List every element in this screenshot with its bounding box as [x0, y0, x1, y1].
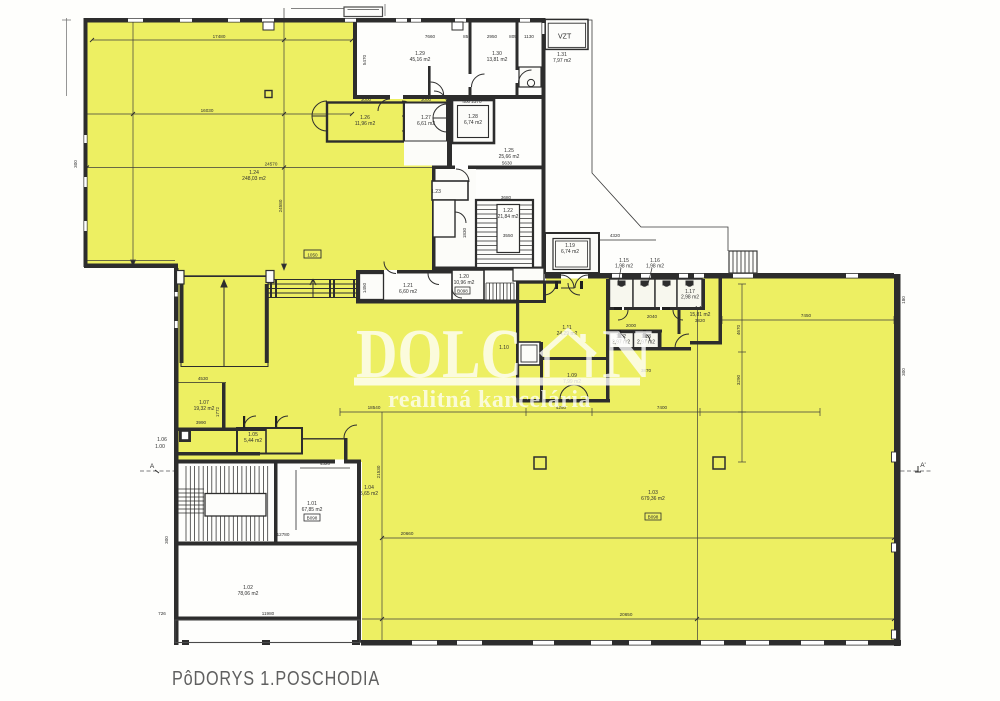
svg-text:B098: B098 — [648, 515, 659, 520]
svg-text:5,44 m2: 5,44 m2 — [244, 438, 262, 444]
svg-text:6,74 m2: 6,74 m2 — [561, 249, 579, 255]
svg-text:1.23: 1.23 — [431, 189, 441, 195]
svg-text:3990: 3990 — [196, 420, 207, 425]
svg-text:7450: 7450 — [801, 313, 812, 318]
svg-text:1.06: 1.06 — [157, 437, 167, 443]
svg-text:805: 805 — [509, 34, 517, 39]
svg-text:24570: 24570 — [265, 162, 278, 167]
svg-text:4320: 4320 — [320, 461, 331, 466]
svg-text:78,06 m2: 78,06 m2 — [238, 591, 259, 597]
svg-text:1,98 m2: 1,98 m2 — [646, 264, 664, 270]
svg-text:400 2370: 400 2370 — [462, 99, 482, 104]
svg-text:1130: 1130 — [524, 34, 534, 39]
svg-text:7400: 7400 — [657, 405, 668, 410]
svg-text:16030: 16030 — [201, 108, 214, 113]
svg-text:4530: 4530 — [198, 376, 209, 381]
svg-text:67,85 m2: 67,85 m2 — [302, 507, 323, 513]
svg-text:20660: 20660 — [401, 531, 414, 536]
svg-text:6,74 m2: 6,74 m2 — [464, 120, 482, 126]
svg-text:679,36 m2: 679,36 m2 — [641, 496, 665, 502]
svg-text:1050: 1050 — [307, 253, 318, 258]
svg-text:12780: 12780 — [277, 532, 290, 537]
svg-text:5,65 m2: 5,65 m2 — [360, 491, 378, 497]
svg-text:300: 300 — [901, 368, 906, 376]
svg-text:1450: 1450 — [362, 282, 367, 293]
svg-text:4320: 4320 — [610, 233, 621, 238]
svg-text:45,16 m2: 45,16 m2 — [410, 57, 431, 63]
svg-text:3000: 3000 — [361, 97, 372, 102]
svg-text:300: 300 — [164, 536, 169, 544]
svg-text:1772: 1772 — [215, 406, 220, 417]
svg-text:300: 300 — [73, 160, 78, 168]
svg-text:5470: 5470 — [362, 54, 367, 65]
svg-text:24580: 24580 — [278, 199, 283, 212]
svg-text:248,03 m2: 248,03 m2 — [242, 176, 266, 182]
svg-text:25,66 m2: 25,66 m2 — [499, 154, 520, 160]
svg-text:A: A — [150, 463, 155, 470]
svg-text:10,96 m2: 10,96 m2 — [454, 280, 475, 286]
svg-text:VZT: VZT — [558, 34, 572, 41]
svg-text:3820: 3820 — [695, 318, 706, 323]
svg-text:3290: 3290 — [736, 374, 741, 385]
svg-text:3000: 3000 — [421, 97, 432, 102]
svg-text:2,98 m2: 2,98 m2 — [681, 295, 699, 301]
svg-text:180: 180 — [901, 296, 906, 304]
svg-text:2950: 2950 — [487, 34, 498, 39]
svg-text:11980: 11980 — [262, 611, 275, 616]
svg-text:19,32 m2: 19,32 m2 — [194, 406, 215, 412]
svg-text:A': A' — [920, 462, 926, 469]
svg-text:7,97 m2: 7,97 m2 — [553, 58, 571, 64]
svg-text:855: 855 — [463, 34, 471, 39]
svg-text:B098: B098 — [457, 289, 468, 294]
svg-text:3550: 3550 — [503, 233, 514, 238]
svg-text:5630: 5630 — [502, 161, 513, 166]
svg-text:1.00: 1.00 — [155, 444, 165, 450]
svg-text:PôDORYS 1.POSCHODIA: PôDORYS 1.POSCHODIA — [172, 668, 380, 690]
svg-text:7660: 7660 — [425, 34, 436, 39]
svg-text:realitná kancelária: realitná kancelária — [388, 387, 591, 413]
svg-text:6,60 m2: 6,60 m2 — [399, 289, 417, 295]
svg-text:3680: 3680 — [501, 195, 512, 200]
svg-text:DOLC: DOLC — [356, 316, 522, 393]
svg-text:13,81 m2: 13,81 m2 — [487, 57, 508, 63]
svg-text:1830: 1830 — [462, 227, 467, 238]
svg-text:N: N — [602, 316, 653, 393]
svg-text:17480: 17480 — [213, 34, 226, 39]
svg-text:21530: 21530 — [376, 465, 381, 478]
svg-text:18540: 18540 — [368, 405, 381, 410]
svg-text:6,61 m2: 6,61 m2 — [417, 121, 435, 127]
svg-text:20650: 20650 — [620, 612, 633, 617]
svg-text:11,96 m2: 11,96 m2 — [355, 121, 376, 127]
svg-text:B098: B098 — [307, 516, 318, 521]
svg-text:21,84 m2: 21,84 m2 — [498, 214, 519, 220]
svg-text:4670: 4670 — [736, 324, 741, 335]
svg-text:726: 726 — [158, 611, 166, 616]
svg-text:1,98 m2: 1,98 m2 — [615, 264, 633, 270]
